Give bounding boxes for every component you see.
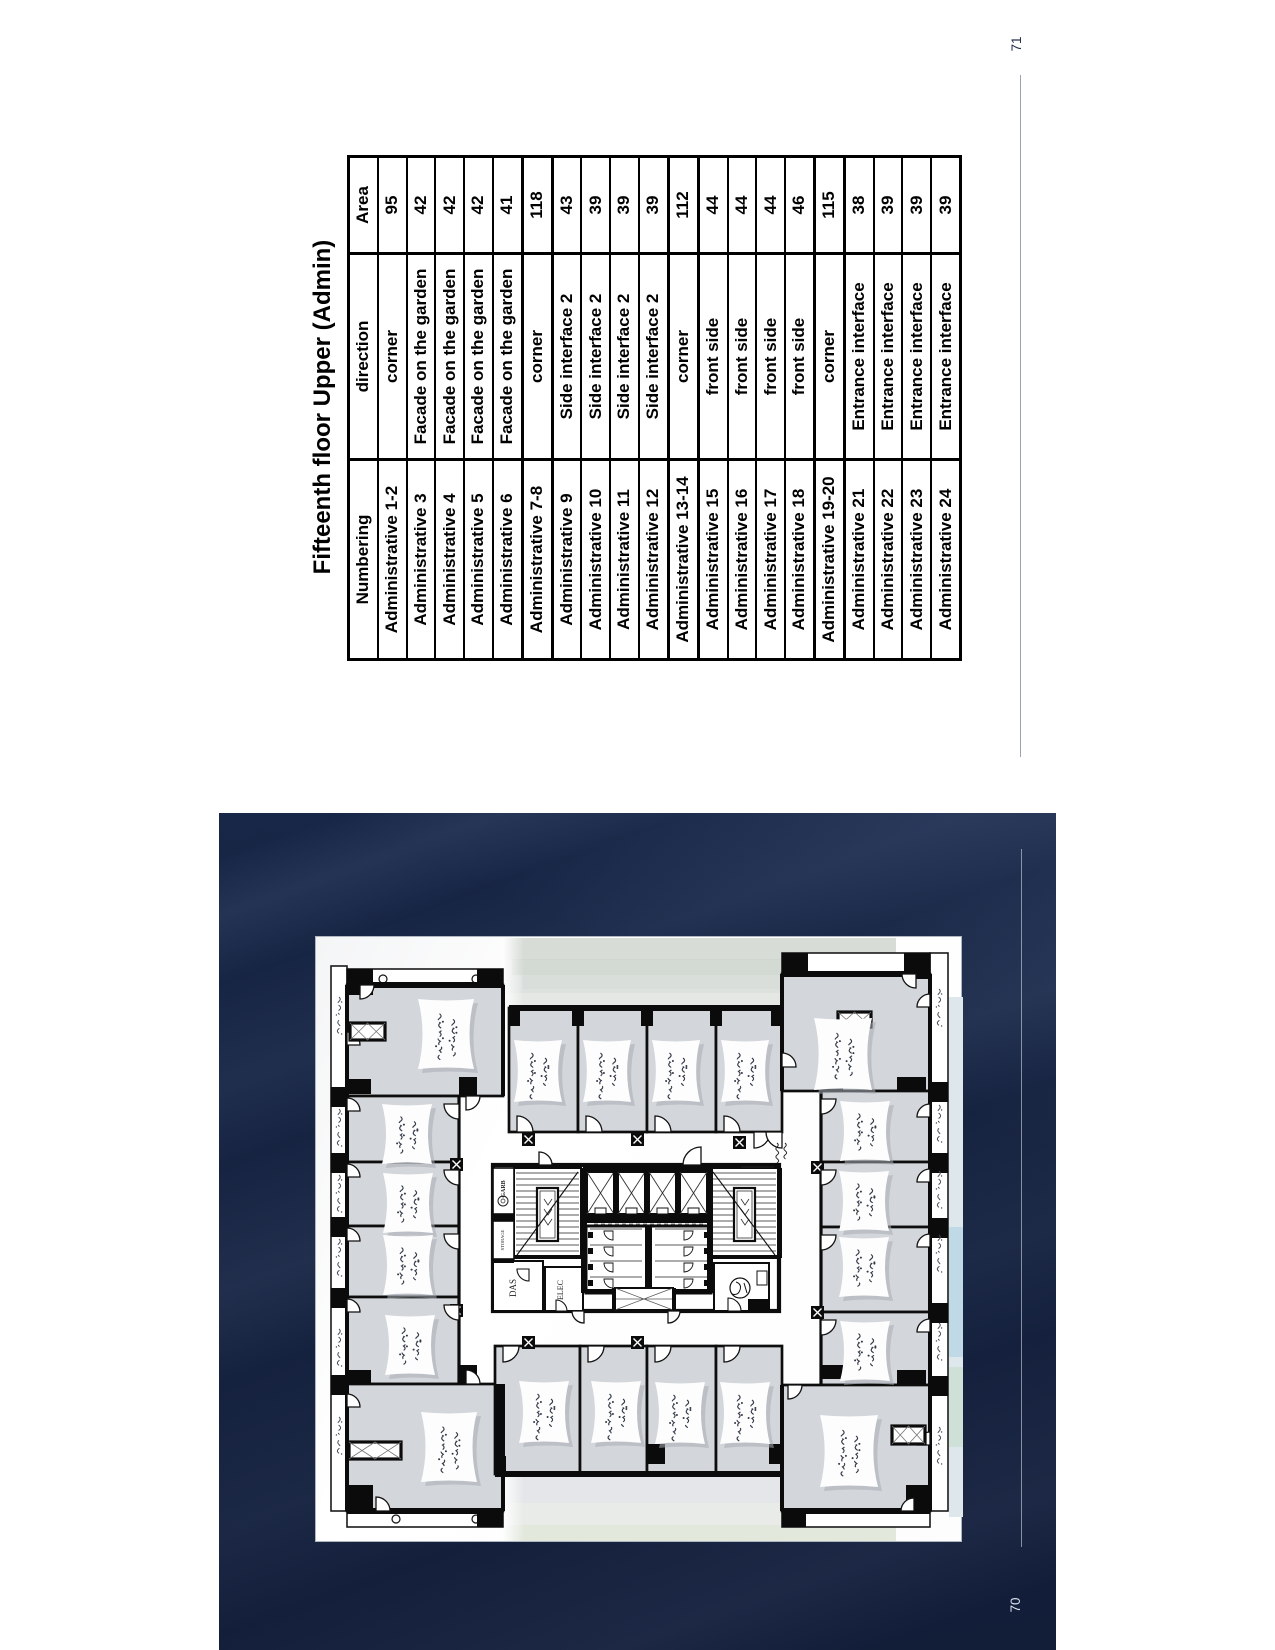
svg-text:DAS: DAS [508,1279,518,1297]
svg-text:GARB: GARB [501,1180,507,1197]
svg-text:STORAGE: STORAGE [500,1229,505,1250]
svg-text:ELEC: ELEC [556,1280,565,1300]
